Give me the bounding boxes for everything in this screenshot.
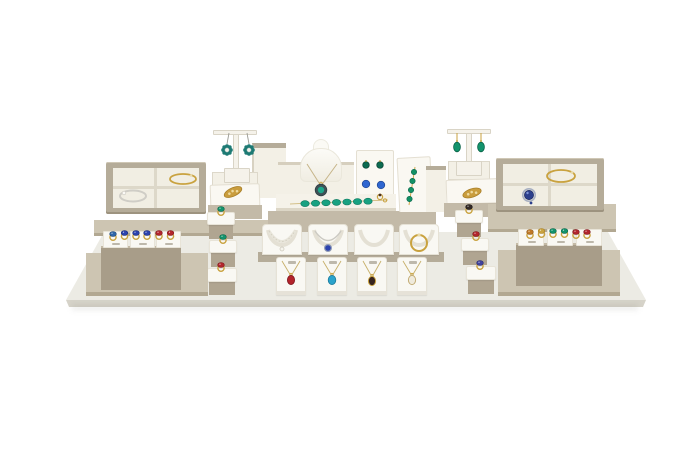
right-ring-stand-1-body — [457, 221, 481, 237]
pendant-stand-3 — [357, 257, 387, 295]
jewelry-display-photo — [0, 0, 700, 466]
collar-display-4 — [399, 224, 439, 255]
left-ring-stand-1-body — [209, 223, 233, 239]
left-ring-stand-3-body — [209, 280, 235, 295]
center-right-riser — [426, 166, 446, 212]
price-tag — [586, 241, 594, 243]
right-ring-stand-3-card — [466, 266, 496, 280]
left-earring-stand-base — [224, 168, 250, 183]
price-tag — [139, 243, 147, 245]
right-brooch-slab — [446, 178, 501, 205]
collar-display-1 — [262, 224, 302, 255]
right-earring-stand-base — [456, 161, 482, 176]
price-tag — [369, 261, 377, 264]
price-tag — [528, 241, 536, 243]
pendant-stand-1 — [276, 257, 306, 295]
price-tag — [409, 261, 417, 264]
left-earring-stand-post — [233, 134, 239, 172]
pendant-stand-2 — [317, 257, 347, 295]
pendant-stand-4 — [397, 257, 427, 295]
right-ring-block — [516, 243, 602, 286]
left-ring-stand-3-card — [207, 268, 237, 282]
right-ring-stand-1-card — [455, 210, 483, 223]
right-ring-stand-2-card — [461, 238, 489, 251]
left-ring-card-2 — [130, 231, 155, 248]
right-ring-card-2 — [547, 229, 573, 246]
left-ring-card-1 — [103, 231, 128, 248]
collar-display-3 — [354, 224, 394, 255]
base-shadow — [72, 305, 638, 310]
left-ring-card-3 — [156, 231, 181, 248]
right-tray-divider-horizontal — [503, 183, 597, 186]
right-ring-stand-3-body — [468, 278, 494, 294]
price-tag — [557, 241, 565, 243]
left-ring-stand-2-card — [209, 240, 237, 253]
price-tag — [329, 261, 337, 264]
right-ring-card-3 — [576, 229, 602, 246]
left-ring-stand-2-body — [211, 251, 235, 267]
left-ring-stand-1-card — [207, 212, 235, 225]
price-tag — [112, 243, 120, 245]
necklace-bust — [300, 148, 342, 182]
right-ring-card-1 — [518, 229, 544, 246]
left-ring-block — [101, 246, 181, 290]
price-tag — [288, 261, 296, 264]
left-tray-divider-horizontal — [113, 186, 199, 189]
price-tag — [165, 243, 173, 245]
collar-display-2 — [308, 224, 348, 255]
right-ring-stand-2-body — [463, 249, 487, 265]
